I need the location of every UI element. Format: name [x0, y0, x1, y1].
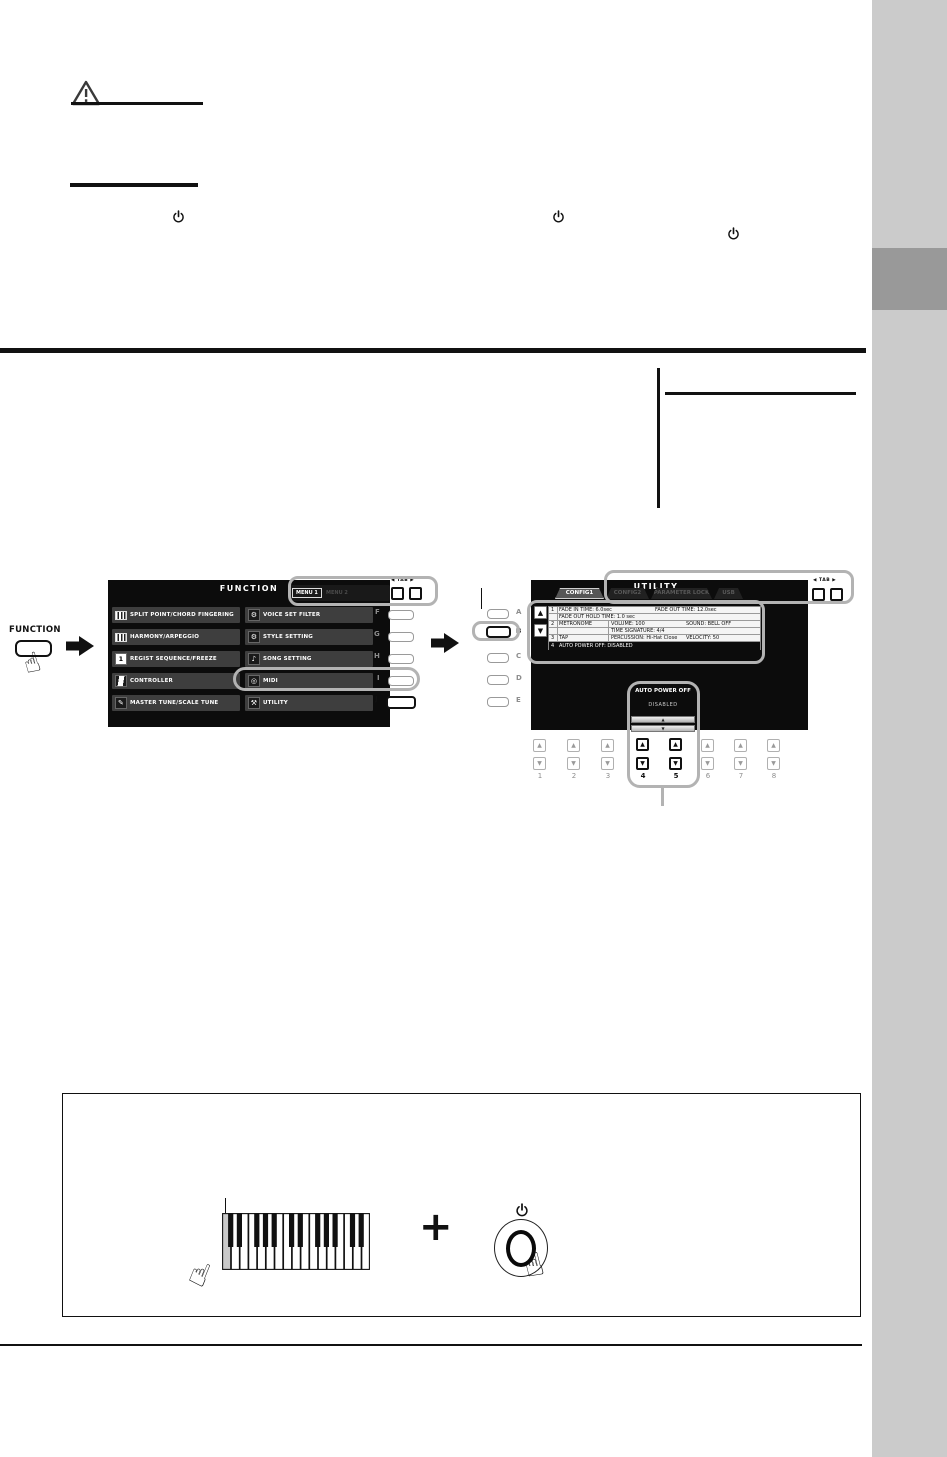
menu-item-harmony-arpeggio[interactable]: HARMONY/ARPEGGIO: [112, 629, 240, 645]
chapter-tab: [872, 248, 947, 310]
tuning-fork-icon: ✎: [115, 697, 127, 709]
warning-triangle-icon: [71, 80, 101, 110]
display-button-h[interactable]: [388, 654, 414, 664]
menu-item-style-setting[interactable]: ⚙ STYLE SETTING: [245, 629, 373, 645]
number-label-4: 4: [636, 772, 650, 780]
display-button-c[interactable]: [487, 653, 509, 663]
callout-button-b: [472, 621, 520, 641]
menu-item-regist-sequence[interactable]: 1 REGIST SEQUENCE/FREEZE: [112, 651, 240, 667]
keyboard-illustration: [222, 1213, 370, 1274]
menu-item-master-tune[interactable]: ✎ MASTER TUNE/SCALE TUNE: [112, 695, 240, 711]
callout-leader-line: [661, 788, 664, 806]
up-button-5[interactable]: ▲: [669, 738, 682, 751]
wrench-icon: ⚒: [248, 697, 260, 709]
down-button-7[interactable]: ▼: [734, 757, 747, 770]
number-label-2: 2: [567, 772, 581, 780]
footer-rule: [0, 1344, 862, 1346]
callout-utility-tab-area: [604, 570, 854, 604]
number-label-5: 5: [669, 772, 683, 780]
lowest-key-marker-line: [225, 1198, 226, 1213]
menu-item-split-point[interactable]: SPLIT POINT/CHORD FINGERING: [112, 607, 240, 623]
up-button-6[interactable]: ▲: [701, 739, 714, 752]
callout-settings-list: [527, 600, 765, 664]
power-icon: [172, 209, 185, 228]
section-divider: [0, 348, 866, 353]
plus-sign: +: [419, 1204, 453, 1250]
button-letter-h: H: [374, 652, 380, 660]
up-button-7[interactable]: ▲: [734, 739, 747, 752]
regist-icon: 1: [115, 653, 127, 665]
tab-config1[interactable]: CONFIG1: [555, 588, 604, 599]
auto-power-off-disable-box: [62, 1093, 861, 1317]
display-button-a[interactable]: [487, 609, 509, 619]
piano-icon: [115, 611, 127, 620]
gear-icon: ⚙: [248, 631, 260, 643]
button-letter-j: J: [375, 695, 378, 703]
notice-underline: [70, 183, 198, 187]
up-button-3[interactable]: ▲: [601, 739, 614, 752]
menu-item-voice-set-filter[interactable]: ⚙ VOICE SET FILTER: [245, 607, 373, 623]
number-label-3: 3: [601, 772, 615, 780]
filter-gear-icon: ⚙: [248, 609, 260, 621]
up-button-4[interactable]: ▲: [636, 738, 649, 751]
down-button-5[interactable]: ▼: [669, 757, 682, 770]
page-edge-sidebar: [872, 0, 947, 1457]
display-button-j[interactable]: [386, 696, 416, 709]
display-button-d[interactable]: [487, 675, 509, 685]
power-icon: [727, 226, 740, 245]
up-button-8[interactable]: ▲: [767, 739, 780, 752]
button-letter-e: E: [516, 696, 521, 704]
button-letter-d: D: [516, 674, 522, 682]
display-button-g[interactable]: [388, 632, 414, 642]
pedal-icon: [115, 675, 127, 687]
number-label-6: 6: [701, 772, 715, 780]
down-button-6[interactable]: ▼: [701, 757, 714, 770]
down-button-4[interactable]: ▼: [636, 757, 649, 770]
step-arrow-icon: [66, 636, 94, 660]
callout-menu-tab-area: [288, 576, 438, 606]
down-button-2[interactable]: ▼: [567, 757, 580, 770]
power-icon: [552, 209, 565, 228]
step-arrow-icon: [431, 633, 459, 657]
number-label-8: 8: [767, 772, 781, 780]
callout-leader-line: [481, 588, 482, 609]
up-button-2[interactable]: ▲: [567, 739, 580, 752]
function-button-label: FUNCTION: [9, 625, 61, 635]
down-button-1[interactable]: ▼: [533, 757, 546, 770]
piano-icon: [115, 633, 127, 642]
menu-item-utility[interactable]: ⚒ UTILITY: [245, 695, 373, 711]
callout-utility-row: [233, 667, 420, 691]
number-label-7: 7: [734, 772, 748, 780]
button-letter-g: G: [374, 630, 380, 638]
down-button-3[interactable]: ▼: [601, 757, 614, 770]
menu-item-controller[interactable]: CONTROLLER: [112, 673, 240, 689]
up-button-1[interactable]: ▲: [533, 739, 546, 752]
display-button-e[interactable]: [487, 697, 509, 707]
note-vertical-rule: [657, 368, 660, 508]
button-letter-a: A: [516, 608, 521, 616]
number-label-1: 1: [533, 772, 547, 780]
display-button-f[interactable]: [388, 610, 414, 620]
button-letter-c: C: [516, 652, 521, 660]
note-gear-icon: ♪: [248, 653, 260, 665]
menu-item-song-setting[interactable]: ♪ SONG SETTING: [245, 651, 373, 667]
down-button-8[interactable]: ▼: [767, 757, 780, 770]
button-letter-f: F: [375, 608, 380, 616]
caution-underline: [71, 102, 203, 105]
note-heading-underline: [665, 392, 856, 395]
